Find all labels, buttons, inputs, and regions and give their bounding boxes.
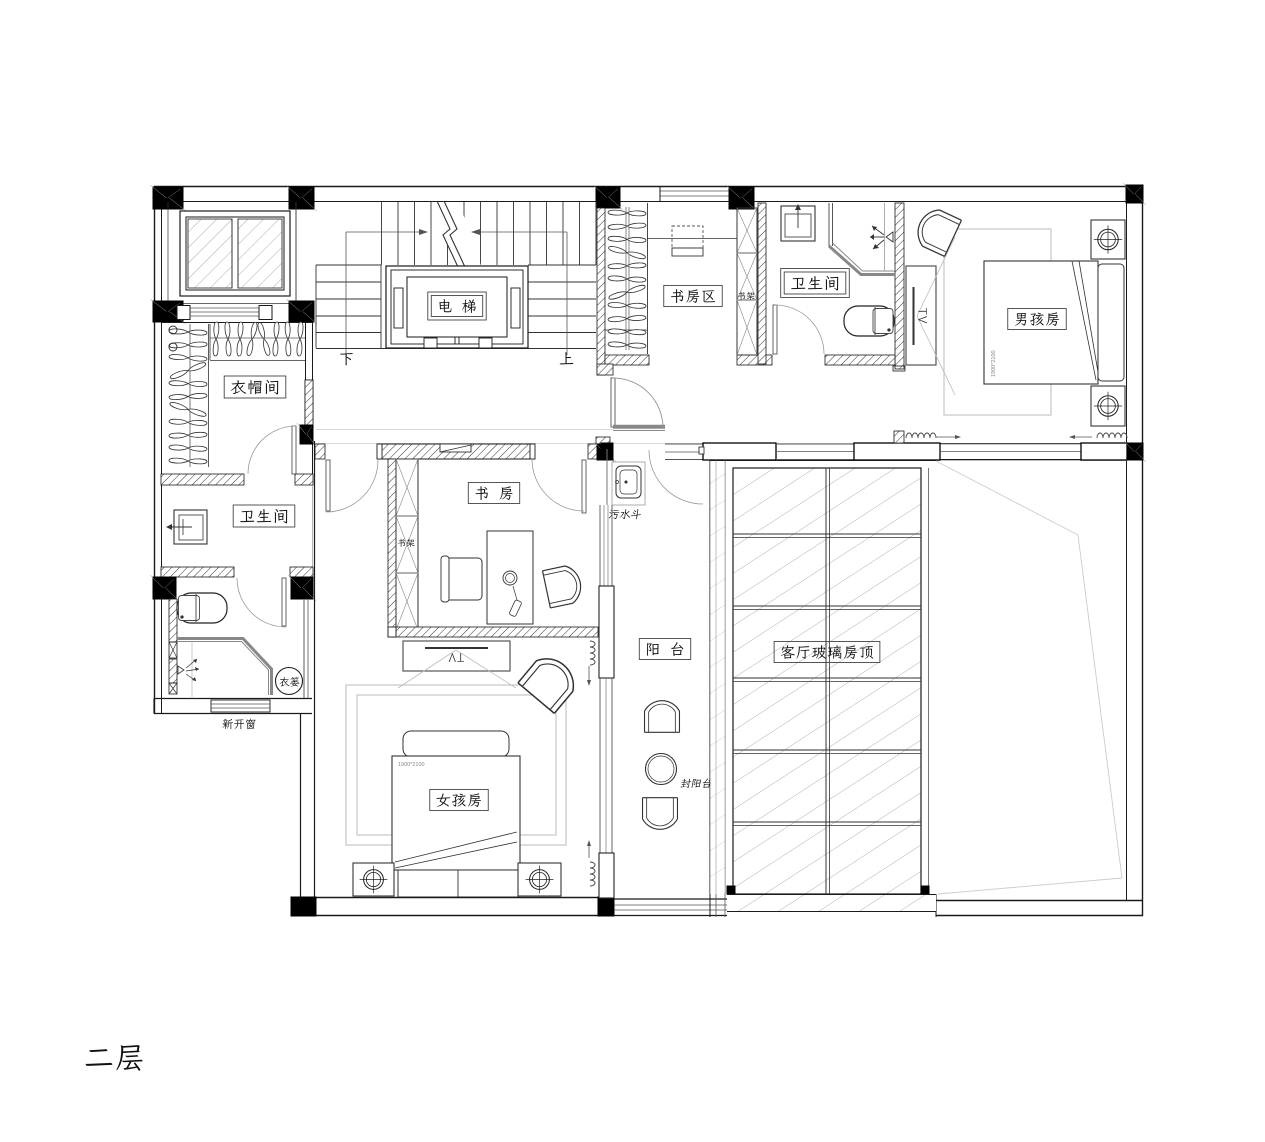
svg-text:1900*2100: 1900*2100 — [991, 350, 997, 377]
svg-text:1900*2100: 1900*2100 — [398, 762, 425, 768]
